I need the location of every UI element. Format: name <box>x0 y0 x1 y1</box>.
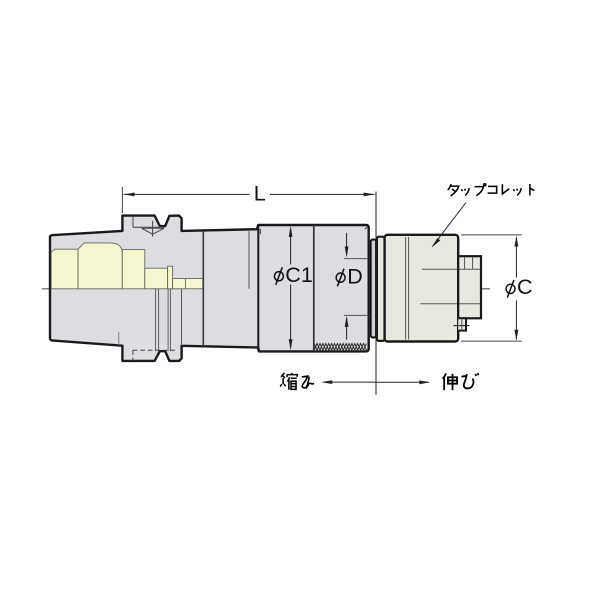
svg-text:D: D <box>347 264 363 288</box>
svg-text:L: L <box>254 182 266 206</box>
svg-text:C: C <box>517 275 533 299</box>
svg-text:C1: C1 <box>285 263 312 287</box>
